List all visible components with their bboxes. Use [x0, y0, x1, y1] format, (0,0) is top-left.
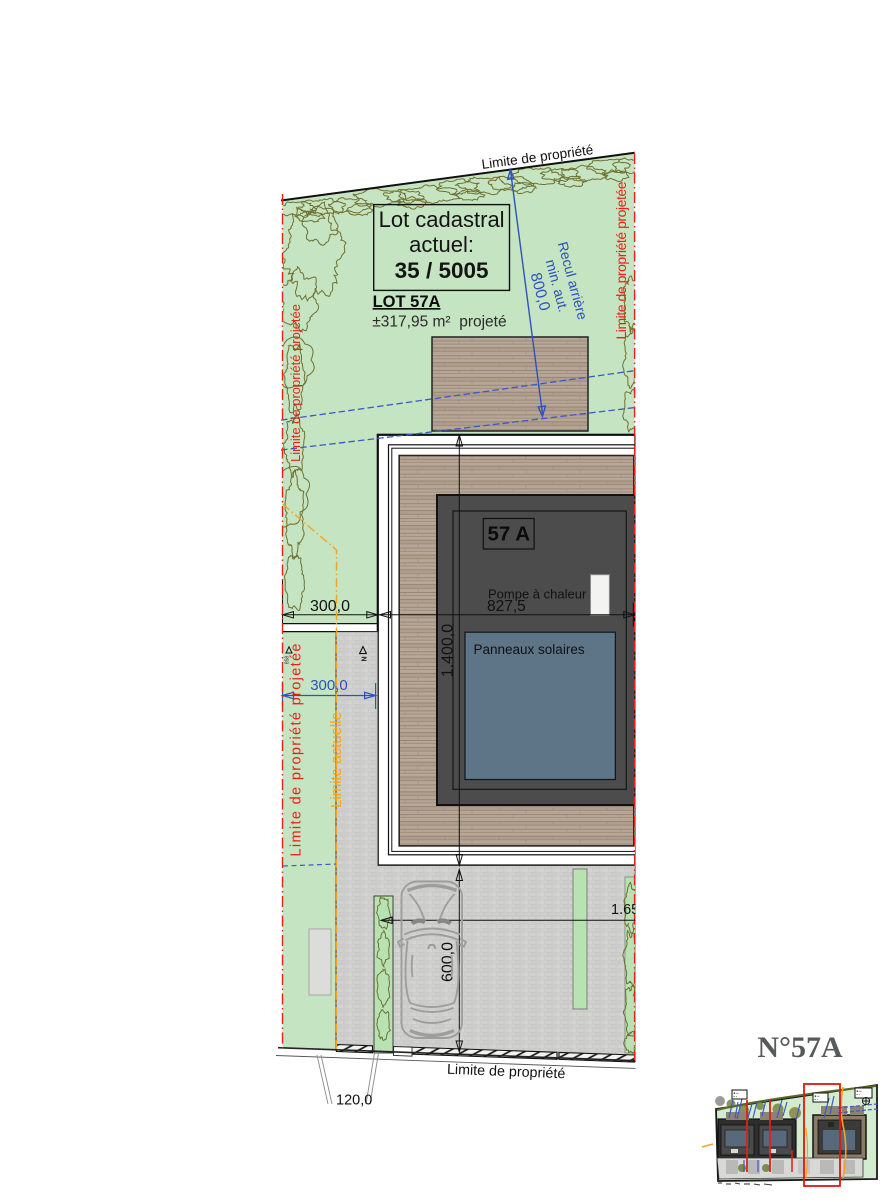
svg-text:120,0: 120,0 — [336, 1093, 372, 1109]
svg-text:Lot cadastral: Lot cadastral — [379, 207, 505, 232]
svg-text:LOT 57A: LOT 57A — [373, 293, 441, 311]
svg-text:35 / 5005: 35 / 5005 — [395, 258, 489, 283]
svg-text:▪▪ ▪: ▪▪ ▪ — [734, 1096, 738, 1099]
svg-text:827,5: 827,5 — [487, 598, 526, 615]
svg-text:300,0: 300,0 — [310, 598, 350, 615]
svg-text:300,0: 300,0 — [310, 677, 348, 694]
svg-text:57 A: 57 A — [488, 523, 531, 546]
svg-text:858: 858 — [285, 656, 291, 665]
svg-text:Limite de propriété projetée: Limite de propriété projetée — [289, 644, 305, 857]
svg-text:Limite de propriété: Limite de propriété — [447, 1062, 566, 1083]
svg-text:±317,95 m² projeté: ±317,95 m² projeté — [372, 314, 506, 331]
svg-text:Limite actuelle: Limite actuelle — [328, 712, 345, 808]
svg-text:600,0: 600,0 — [440, 942, 457, 982]
svg-text:Panneaux solaires: Panneaux solaires — [474, 642, 585, 657]
svg-text:Limite de propriété projetée: Limite de propriété projetée — [613, 181, 629, 339]
svg-text:N: N — [362, 656, 369, 661]
svg-text:▪▪ ▪: ▪▪ ▪ — [857, 1094, 861, 1097]
svg-text:Limite de propriété projetée: Limite de propriété projetée — [288, 304, 303, 462]
svg-text:1.400,0: 1.400,0 — [440, 624, 457, 677]
svg-text:actuel:: actuel: — [409, 232, 474, 257]
svg-text:N°57A: N°57A — [757, 1031, 843, 1064]
svg-text:1.650,0: 1.650,0 — [611, 902, 659, 918]
svg-text:▪▪ ▪: ▪▪ ▪ — [815, 1099, 819, 1102]
